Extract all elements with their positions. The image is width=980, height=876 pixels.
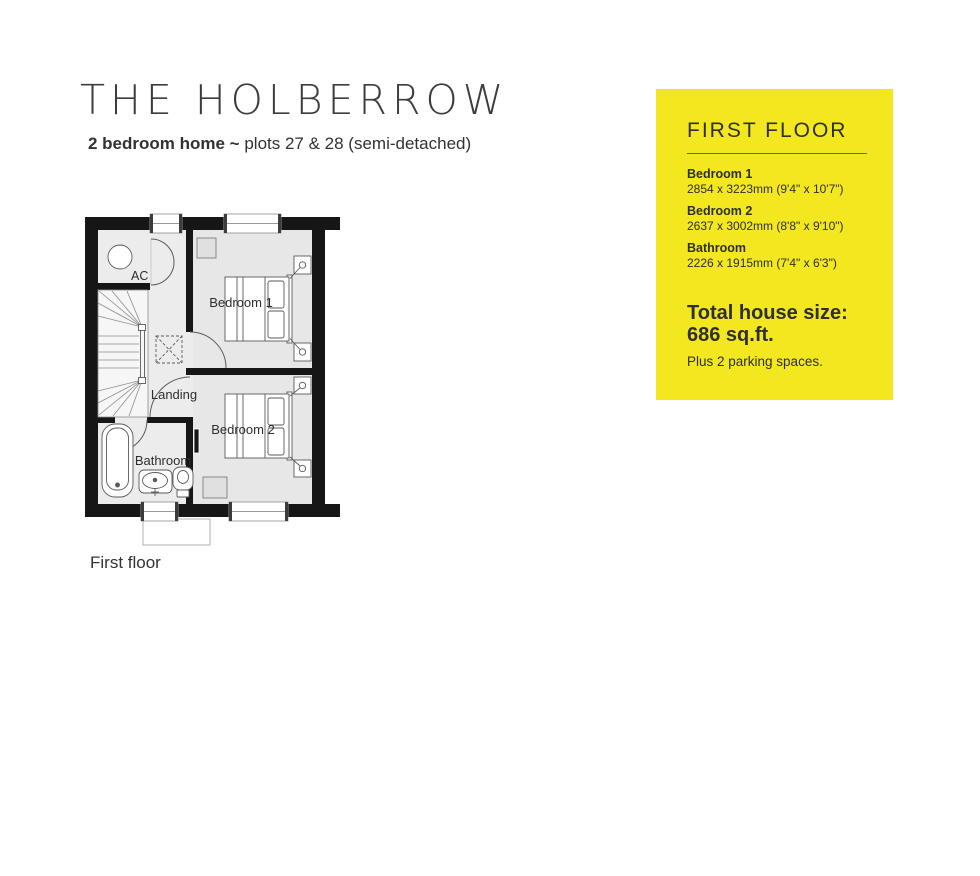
wall-ac-bottom [98,283,150,290]
room-spec-name: Bedroom 1 [687,167,867,182]
wall-bathroom-top-left [98,417,115,423]
page-title: THE HOLBERROW [80,76,508,124]
porch-outline [143,519,210,545]
room-spec-name: Bedroom 2 [687,204,867,219]
wall-bottom-left [85,504,142,517]
brochure-page: THE HOLBERROW 2 bedroom home ~ plots 27 … [0,0,980,876]
room-spec-name: Bathroom [687,241,867,256]
window-bedroom1 [224,214,281,233]
staircase [98,290,148,417]
wall-bottom-mid [177,504,230,517]
wall-bedroom1-left [186,230,193,332]
bath-tub [102,424,133,497]
window-ac [150,214,182,233]
panel-divider [687,153,867,154]
window-bedroom2 [229,502,288,521]
info-panel: FIRST FLOOR Bedroom 1 2854 x 3223mm (9'4… [656,89,893,400]
wall-top-mid [180,217,225,230]
wall-left [85,217,98,517]
wall-right-party [312,217,325,517]
bedroom1-wardrobe [197,238,216,258]
room-spec: Bathroom 2226 x 1915mm (7'4" x 6'3") [687,241,867,271]
floor-caption: First floor [90,553,161,573]
label-ac: AC [131,269,148,283]
total-label: Total house size: [687,302,867,325]
room-spec: Bedroom 2 2637 x 3002mm (8'8" x 9'10") [687,204,867,234]
subtitle-regular: plots 27 & 28 (semi-detached) [240,134,472,153]
label-bedroom1: Bedroom 1 [209,295,273,310]
total-value: 686 sq.ft. [687,324,867,347]
label-landing: Landing [151,387,197,402]
sink [139,470,172,496]
page-subtitle: 2 bedroom home ~ plots 27 & 28 (semi-det… [88,134,471,154]
window-bathroom [141,502,178,521]
bedroom2-wardrobe [203,477,227,498]
room-spec: Bedroom 1 2854 x 3223mm (9'4" x 10'7") [687,167,867,197]
party-wall-stub-bottom [312,504,340,517]
wall-bedroom-divider [186,368,312,375]
label-bedroom2: Bedroom 2 [211,422,275,437]
room-spec-dims: 2226 x 1915mm (7'4" x 6'3") [687,256,867,271]
floorplan-drawing: AC Bedroom 1 Landing Bathroom Bedroom 2 [75,195,405,560]
label-bathroom: Bathroom [135,453,191,468]
ac-tank [108,245,132,269]
subtitle-bold: 2 bedroom home ~ [88,134,240,153]
door-leaf-bedroom2 [194,429,199,453]
room-spec-dims: 2637 x 3002mm (8'8" x 9'10") [687,219,867,234]
room-spec-dims: 2854 x 3223mm (9'4" x 10'7") [687,182,867,197]
total-house-size: Total house size: 686 sq.ft. [687,302,867,348]
panel-heading: FIRST FLOOR [687,119,867,143]
parking-note: Plus 2 parking spaces. [687,354,867,369]
wall-bathroom-top-right [147,417,186,423]
